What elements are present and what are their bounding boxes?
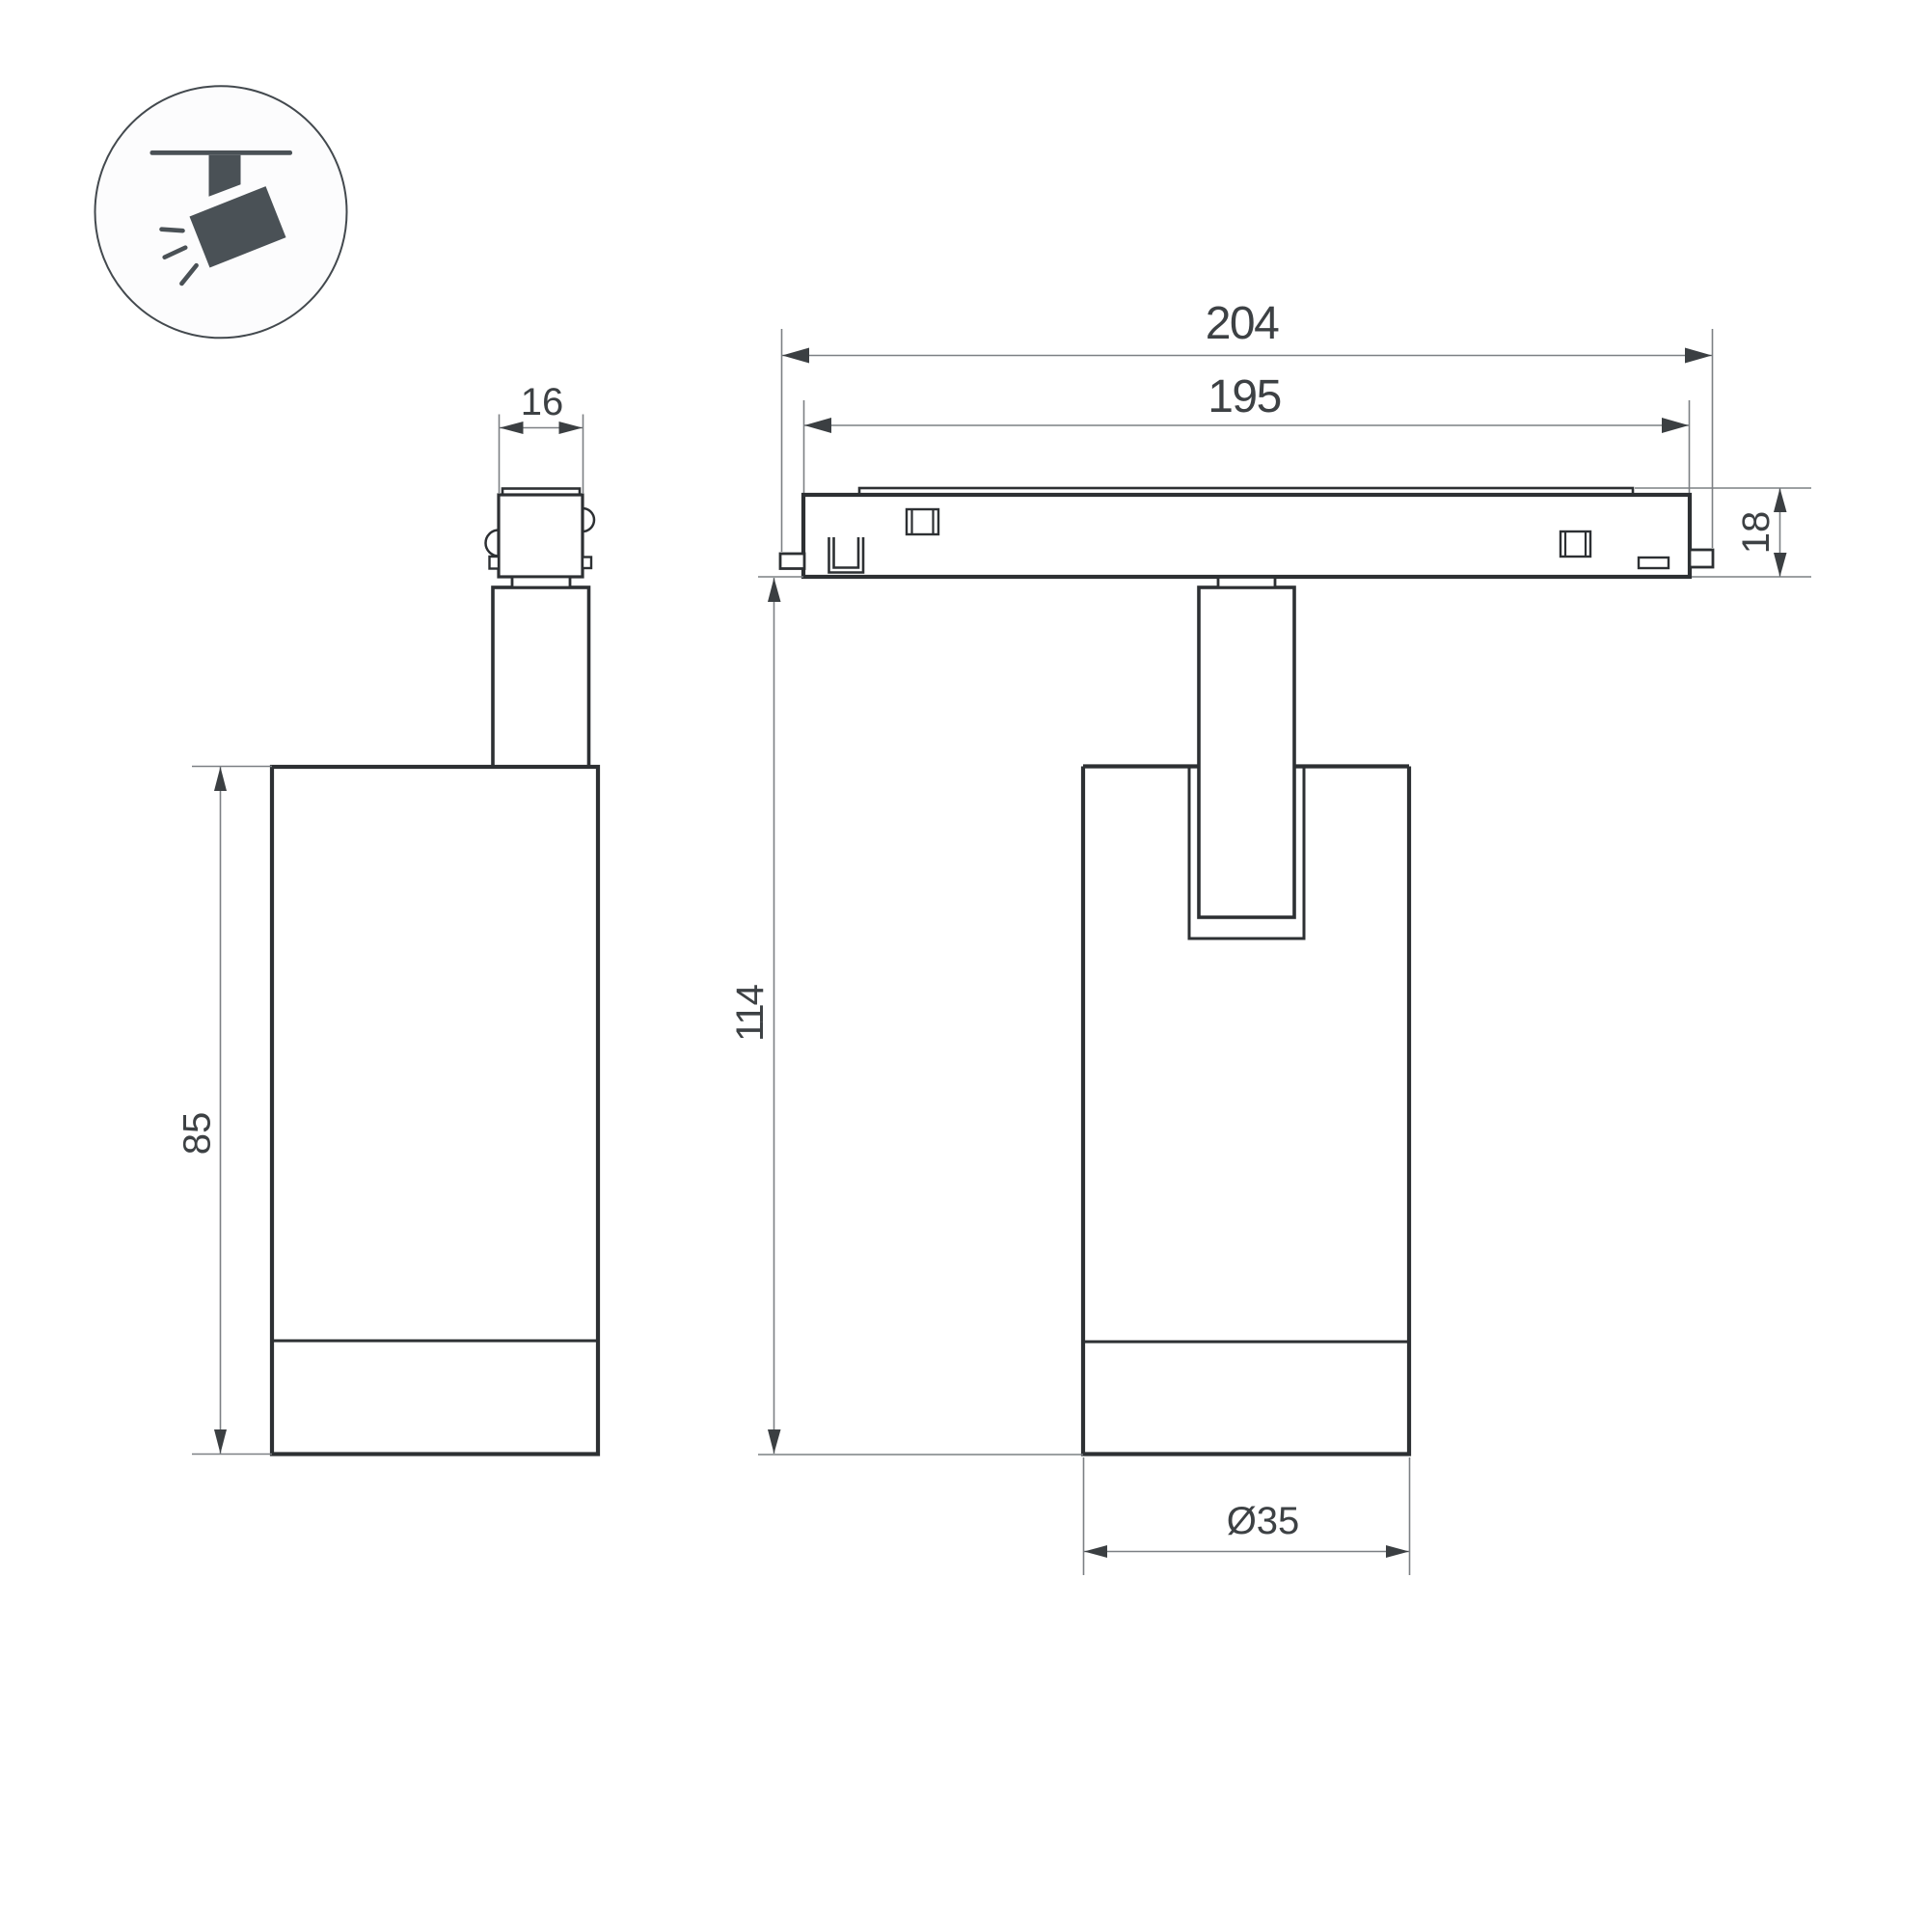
svg-text:16: 16 (521, 381, 564, 423)
svg-text:18: 18 (1735, 511, 1778, 555)
svg-text:114: 114 (729, 984, 772, 1042)
svg-text:195: 195 (1208, 371, 1281, 422)
svg-text:85: 85 (176, 1112, 219, 1156)
svg-text:204: 204 (1206, 298, 1279, 349)
svg-text:Ø35: Ø35 (1227, 1500, 1300, 1542)
